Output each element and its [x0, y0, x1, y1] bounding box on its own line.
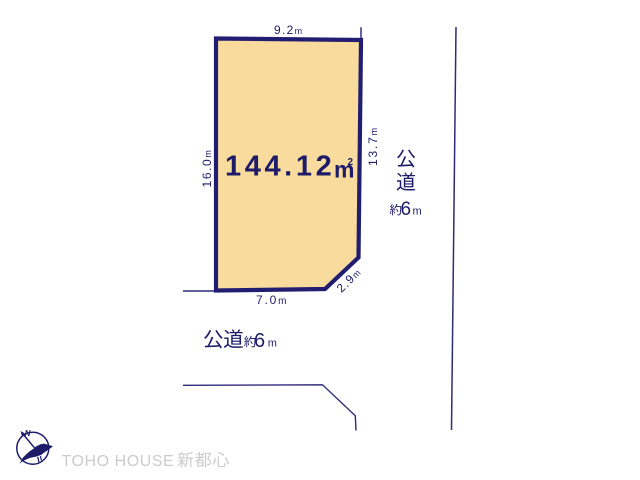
svg-text:m: m — [268, 337, 277, 349]
svg-text:9.2m: 9.2m — [274, 23, 303, 37]
svg-text:13.7m: 13.7m — [366, 126, 380, 166]
svg-text:6: 6 — [254, 330, 265, 352]
svg-text:m: m — [413, 205, 422, 217]
svg-text:6: 6 — [401, 199, 412, 220]
svg-text:N: N — [25, 429, 31, 438]
svg-text:2: 2 — [348, 157, 354, 168]
svg-text:144.12: 144.12 — [225, 151, 335, 183]
svg-text:16.0m: 16.0m — [200, 149, 214, 188]
svg-text:7.0m: 7.0m — [256, 293, 288, 307]
svg-text:TOHO HOUSE: TOHO HOUSE — [62, 453, 175, 470]
